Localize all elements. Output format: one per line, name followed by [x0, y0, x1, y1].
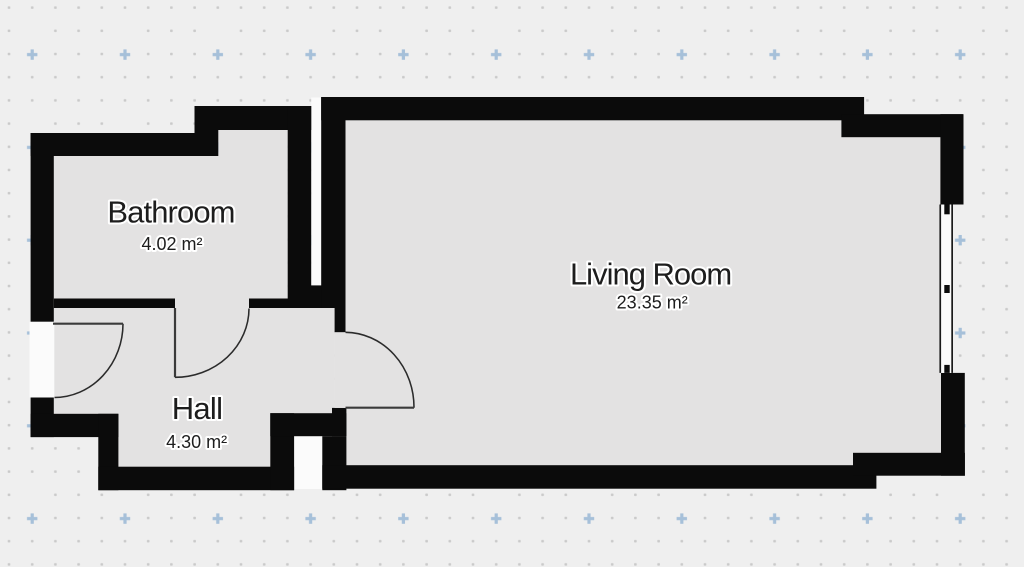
- svg-text:Hall: Hall: [172, 391, 223, 426]
- svg-text:4.02 m²: 4.02 m²: [141, 234, 202, 254]
- svg-text:23.35 m²: 23.35 m²: [617, 293, 688, 313]
- svg-text:Living Room: Living Room: [570, 257, 731, 292]
- svg-text:Bathroom: Bathroom: [107, 194, 234, 229]
- svg-text:4.30 m²: 4.30 m²: [166, 432, 227, 452]
